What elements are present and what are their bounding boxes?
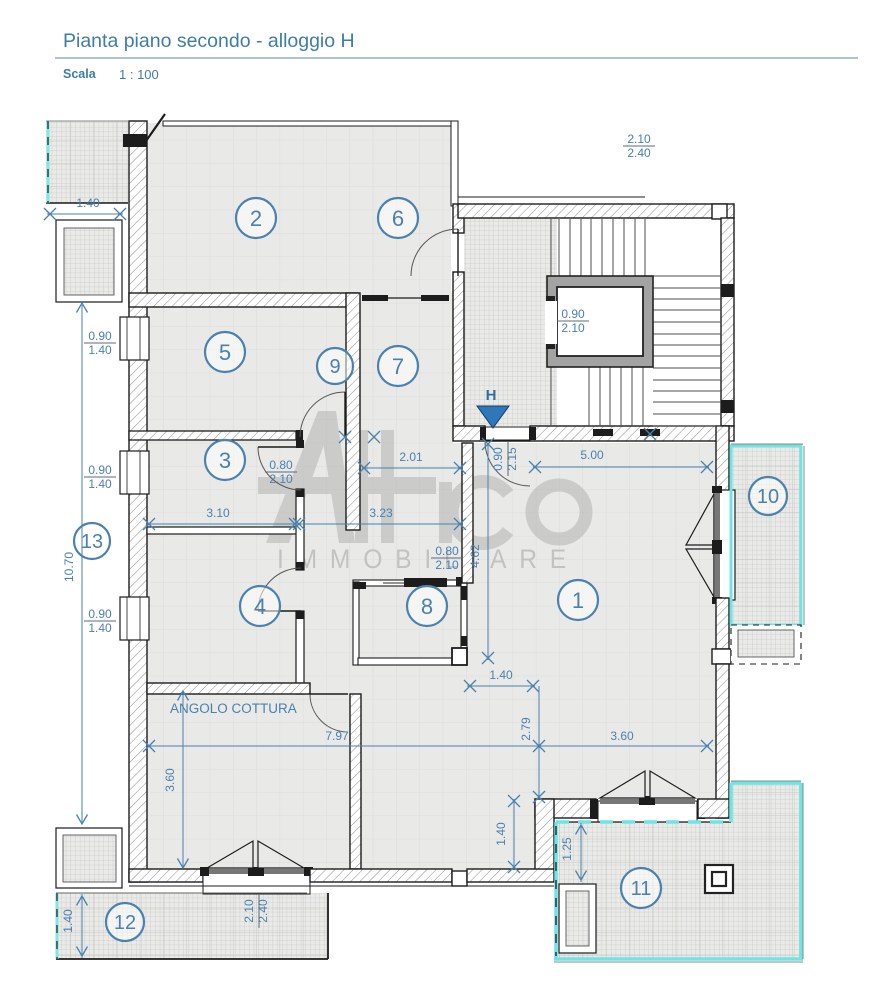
svg-text:2.40: 2.40 — [627, 146, 651, 160]
svg-text:6: 6 — [392, 206, 404, 231]
svg-text:0.90: 0.90 — [561, 307, 585, 321]
svg-text:Scala: Scala — [63, 67, 97, 81]
svg-text:2.79: 2.79 — [519, 717, 533, 741]
svg-text:12: 12 — [114, 912, 136, 934]
svg-text:ANGOLO COTTURA: ANGOLO COTTURA — [170, 701, 297, 716]
svg-text:1.40: 1.40 — [61, 909, 75, 933]
svg-text:3: 3 — [219, 448, 231, 473]
svg-text:2.10: 2.10 — [561, 321, 585, 335]
svg-text:3.23: 3.23 — [369, 506, 393, 520]
svg-text:2: 2 — [250, 206, 262, 231]
svg-text:9: 9 — [329, 356, 340, 378]
svg-text:7.97: 7.97 — [325, 729, 349, 743]
svg-text:0.80: 0.80 — [435, 544, 459, 558]
svg-text:1.40: 1.40 — [88, 477, 112, 491]
svg-text:11: 11 — [631, 878, 652, 900]
svg-text:5: 5 — [219, 340, 231, 365]
svg-text:10: 10 — [757, 486, 779, 508]
svg-text:2.10: 2.10 — [242, 899, 256, 923]
svg-text:2.15: 2.15 — [505, 447, 519, 471]
svg-text:3.60: 3.60 — [163, 768, 177, 792]
svg-text:13: 13 — [81, 531, 103, 553]
svg-text:IMMOBILIARE: IMMOBILIARE — [277, 544, 579, 574]
svg-text:1.40: 1.40 — [76, 196, 100, 210]
svg-text:2.40: 2.40 — [256, 899, 270, 923]
svg-text:Pianta piano secondo - alloggi: Pianta piano secondo - alloggio H — [63, 30, 355, 52]
svg-text:H: H — [486, 387, 497, 404]
svg-text:1.25: 1.25 — [560, 837, 574, 861]
svg-text:1 : 100: 1 : 100 — [119, 67, 159, 82]
svg-text:1: 1 — [572, 588, 584, 613]
svg-text:0.90: 0.90 — [491, 447, 505, 471]
svg-text:0.90: 0.90 — [88, 329, 112, 343]
svg-text:1.40: 1.40 — [88, 621, 112, 635]
svg-text:0.80: 0.80 — [269, 458, 293, 472]
svg-text:1.40: 1.40 — [88, 343, 112, 357]
svg-text:2.10: 2.10 — [435, 558, 459, 572]
svg-text:1.40: 1.40 — [494, 822, 508, 846]
svg-text:10.70: 10.70 — [62, 552, 76, 582]
svg-text:2.01: 2.01 — [399, 450, 423, 464]
svg-text:4: 4 — [254, 594, 266, 619]
svg-text:1.40: 1.40 — [489, 668, 513, 682]
svg-text:4.62: 4.62 — [468, 544, 482, 568]
svg-text:0.90: 0.90 — [88, 607, 112, 621]
svg-text:3.10: 3.10 — [206, 506, 230, 520]
svg-text:0.90: 0.90 — [88, 463, 112, 477]
svg-text:2.10: 2.10 — [627, 132, 651, 146]
svg-text:3.60: 3.60 — [610, 729, 634, 743]
svg-text:2.10: 2.10 — [269, 472, 293, 486]
svg-text:8: 8 — [421, 594, 433, 619]
svg-text:5.00: 5.00 — [580, 448, 604, 462]
svg-text:7: 7 — [392, 354, 404, 379]
